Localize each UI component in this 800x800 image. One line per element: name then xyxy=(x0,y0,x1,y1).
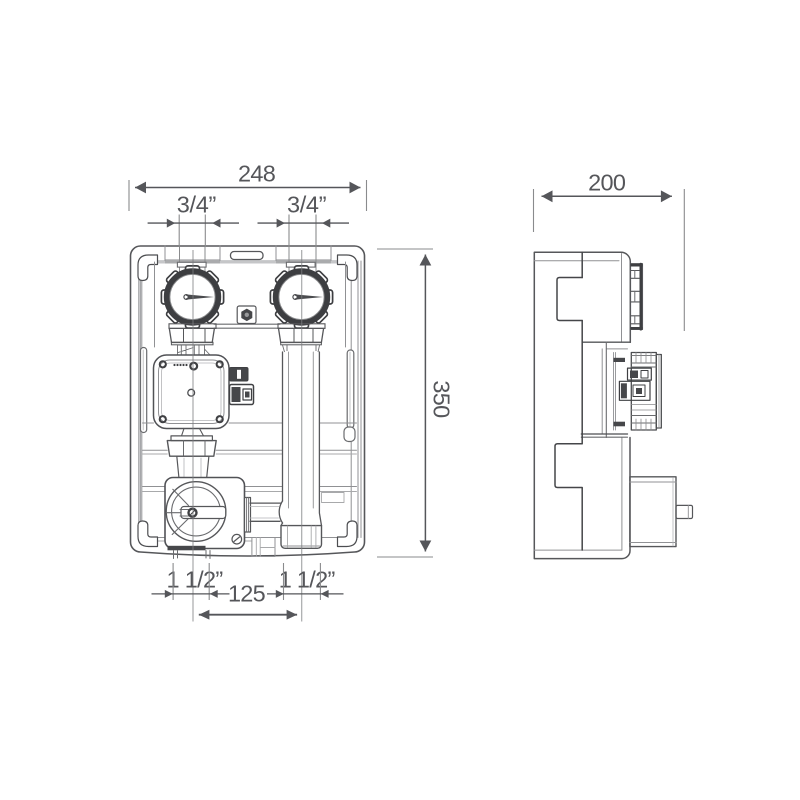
svg-text:1 1/2”: 1 1/2” xyxy=(167,566,223,592)
svg-text:248: 248 xyxy=(238,161,276,187)
svg-text:3/4”: 3/4” xyxy=(287,192,326,218)
svg-text:3/4”: 3/4” xyxy=(177,192,216,218)
svg-text:350: 350 xyxy=(429,380,455,418)
svg-text:125: 125 xyxy=(228,581,266,607)
svg-text:200: 200 xyxy=(588,169,626,195)
svg-text:1 1/2”: 1 1/2” xyxy=(279,566,335,592)
